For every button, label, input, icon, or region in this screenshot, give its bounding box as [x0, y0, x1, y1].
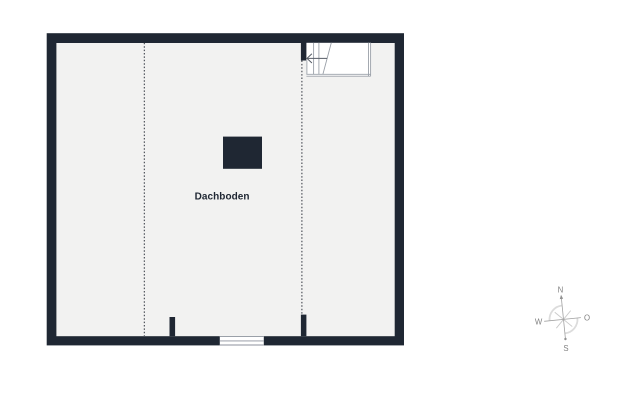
svg-text:O: O [584, 314, 590, 323]
svg-text:W: W [535, 318, 543, 327]
svg-text:N: N [558, 286, 564, 295]
svg-text:Dachboden: Dachboden [195, 192, 250, 203]
svg-text:S: S [563, 344, 568, 353]
